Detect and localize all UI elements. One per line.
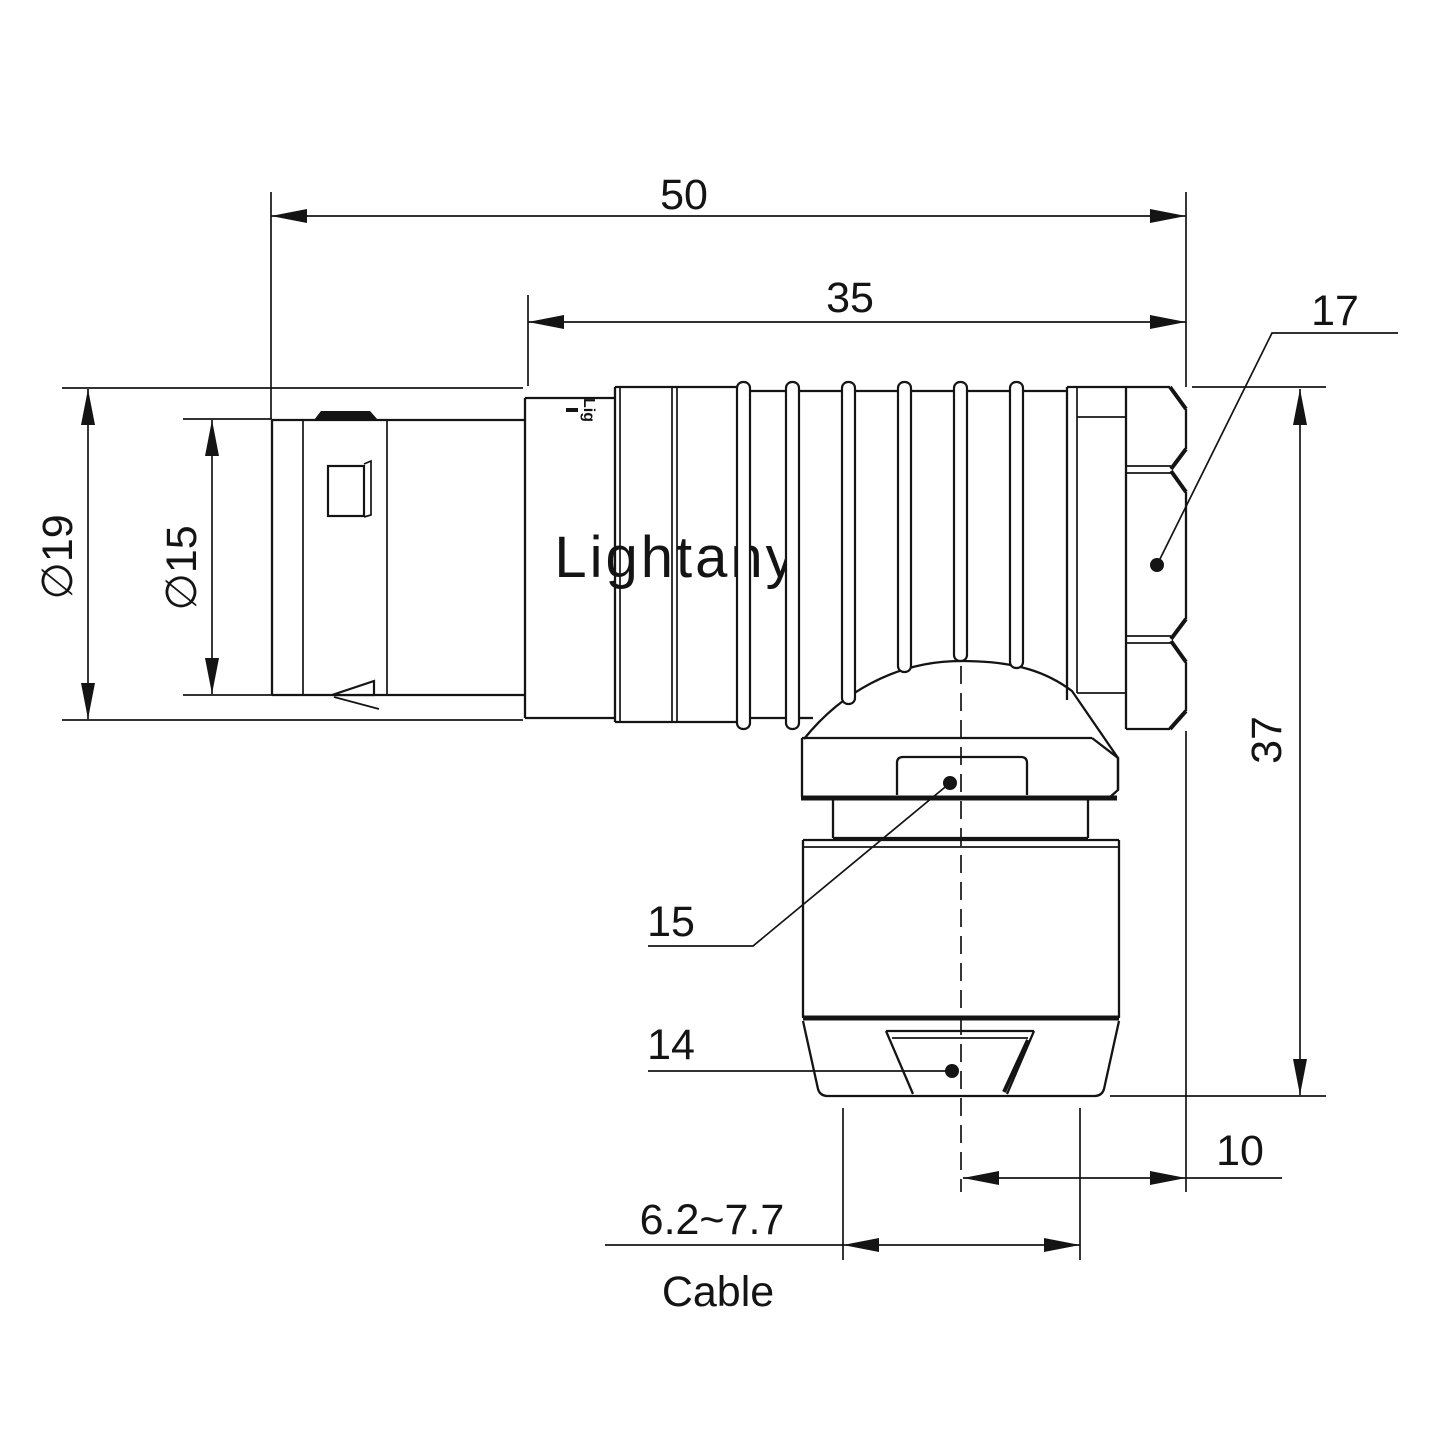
nut-notch2-b: [1171, 641, 1186, 662]
arrow-right: [1150, 209, 1186, 223]
arrow-down: [1293, 1059, 1307, 1095]
keying-bump: [314, 411, 378, 420]
gland-window-right2: [1004, 1040, 1028, 1092]
nut-notch1-a: [1171, 449, 1186, 469]
dimension-cable: 6.2~7.7 Cable: [605, 1108, 1080, 1316]
watermark-text: Lightany: [554, 525, 797, 590]
dim-dia15-text: ∅15: [158, 525, 206, 610]
grip-rib-6: [1010, 382, 1023, 668]
callout-15-text: 15: [647, 898, 695, 946]
leader-line: [1157, 333, 1398, 565]
clamp-window: [897, 757, 1027, 795]
callout-14: 14: [647, 1021, 959, 1078]
bottom-latch-edge: [334, 697, 379, 709]
drawing-canvas: Lightany Lig: [0, 0, 1440, 1440]
arrow-left: [963, 1171, 999, 1185]
arrow-left: [843, 1238, 879, 1252]
arrow-left: [528, 315, 564, 329]
grip-rib-2: [786, 382, 799, 729]
callout-14-text: 14: [647, 1021, 695, 1069]
nut-notch1-b: [1171, 471, 1186, 492]
print-dash: [566, 408, 578, 412]
outer-shell: Lig: [525, 382, 1126, 790]
cable-range-text: 6.2~7.7: [640, 1196, 785, 1244]
clamp-band-right: [1092, 738, 1118, 797]
arrow-right: [1150, 1171, 1186, 1185]
grip-rib-4: [898, 382, 911, 672]
leader-dot: [945, 1064, 959, 1078]
gland-window-left: [886, 1031, 913, 1094]
dim-dia19-text: ∅19: [34, 514, 82, 599]
grip-rib-5: [954, 382, 967, 661]
dimension-37: 37: [1110, 387, 1326, 1096]
arrow-down: [81, 683, 95, 719]
arrow-up: [205, 420, 219, 456]
gland-window-right: [1007, 1031, 1034, 1094]
nut-chamfer-br: [1170, 711, 1186, 729]
dimension-dia19: ∅19: [34, 388, 523, 720]
dim-50-text: 50: [660, 171, 708, 219]
elbow-gland: [801, 666, 1119, 1192]
dimension-35: 35: [528, 274, 1186, 386]
leader-dot: [943, 776, 957, 790]
grip-rib-1: [737, 382, 750, 729]
arrow-down: [205, 658, 219, 694]
front-barrel: [272, 411, 525, 709]
leader-dot: [1150, 558, 1164, 572]
technical-drawing: Lightany Lig: [0, 0, 1440, 1440]
dim-37-text: 37: [1243, 716, 1291, 764]
callout-17-text: 17: [1311, 287, 1359, 335]
dimension-dia15: ∅15: [158, 419, 272, 695]
arrow-right: [1150, 315, 1186, 329]
arrow-right: [1044, 1238, 1080, 1252]
latch-window: [328, 466, 364, 516]
callout-17: 17: [1150, 287, 1398, 572]
arrow-left: [271, 209, 307, 223]
arrow-up: [81, 389, 95, 425]
dim-35-text: 35: [826, 274, 874, 322]
nut-chamfer-tr: [1170, 387, 1186, 409]
cable-word-text: Cable: [662, 1268, 774, 1316]
dimension-50: 50: [271, 171, 1186, 419]
shell-print-text: Lig: [580, 398, 597, 422]
hex-nut: [1126, 387, 1186, 729]
arrow-up: [1293, 389, 1307, 425]
grip-rib-3: [842, 382, 855, 704]
bottom-latch: [332, 681, 374, 695]
nut-notch2-a: [1171, 619, 1186, 639]
dim-10-text: 10: [1216, 1127, 1264, 1175]
